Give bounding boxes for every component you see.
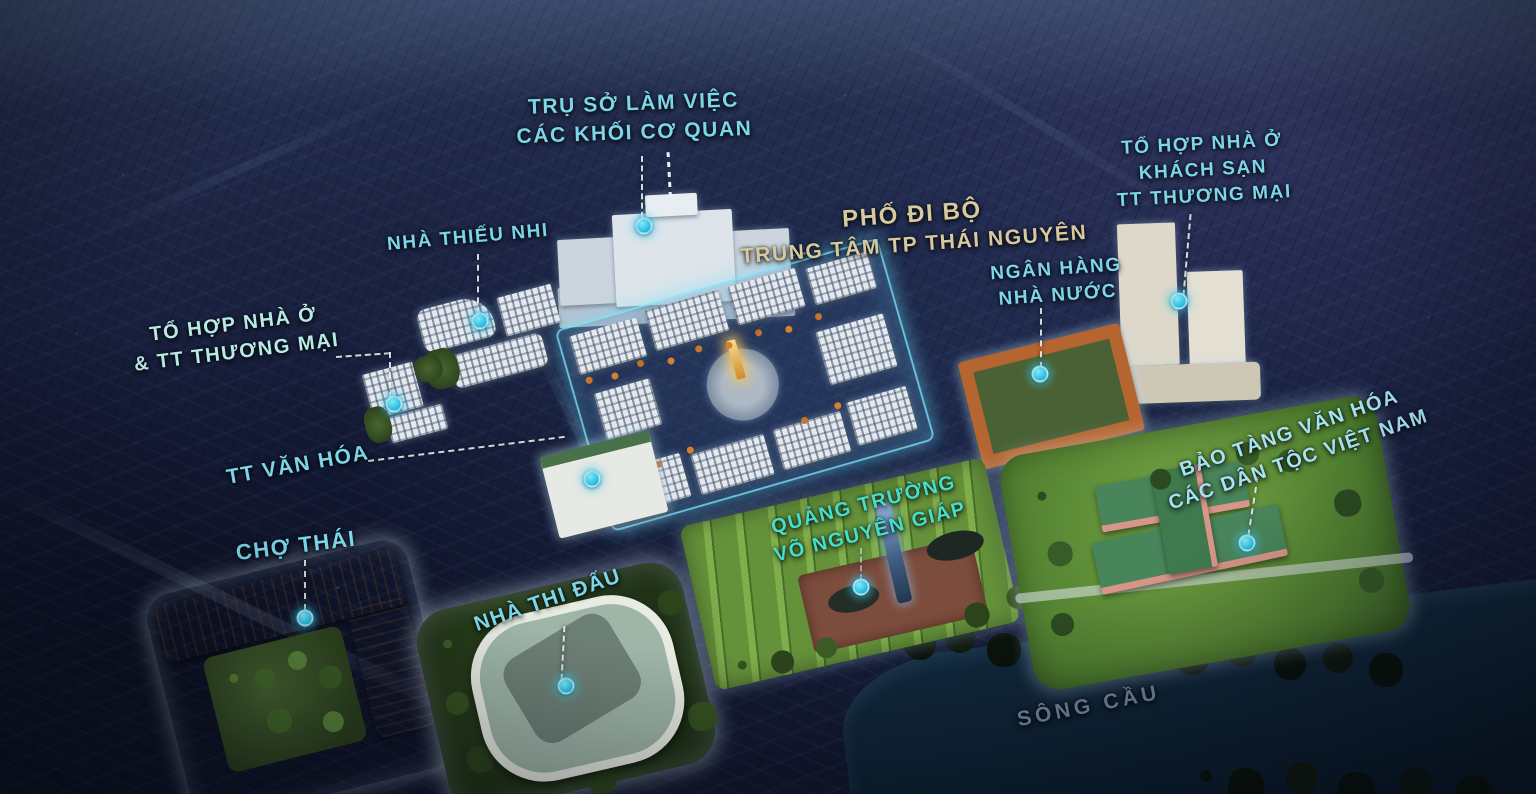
vignette: [0, 0, 1536, 794]
masterplan-canvas[interactable]: TRỤ SỞ LÀM VIỆC CÁC KHỐI CƠ QUAN NHÀ THI…: [0, 0, 1536, 794]
